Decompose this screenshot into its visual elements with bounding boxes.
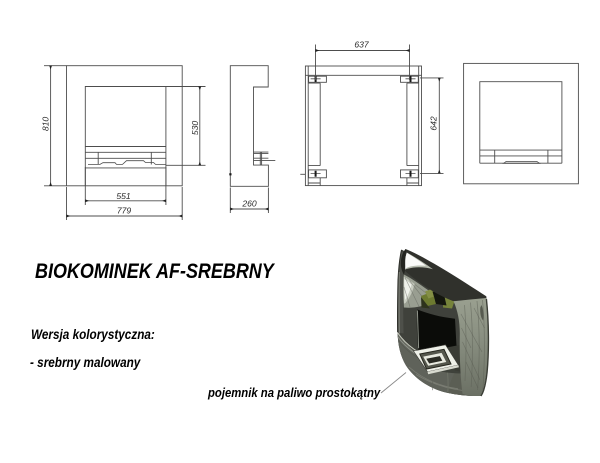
svg-text:260: 260: [241, 199, 257, 209]
svg-text:551: 551: [116, 191, 131, 201]
svg-text:810: 810: [40, 117, 50, 132]
svg-text:642: 642: [429, 116, 439, 131]
svg-text:779: 779: [117, 206, 132, 216]
svg-text:637: 637: [354, 40, 370, 50]
svg-text:530: 530: [190, 121, 200, 136]
